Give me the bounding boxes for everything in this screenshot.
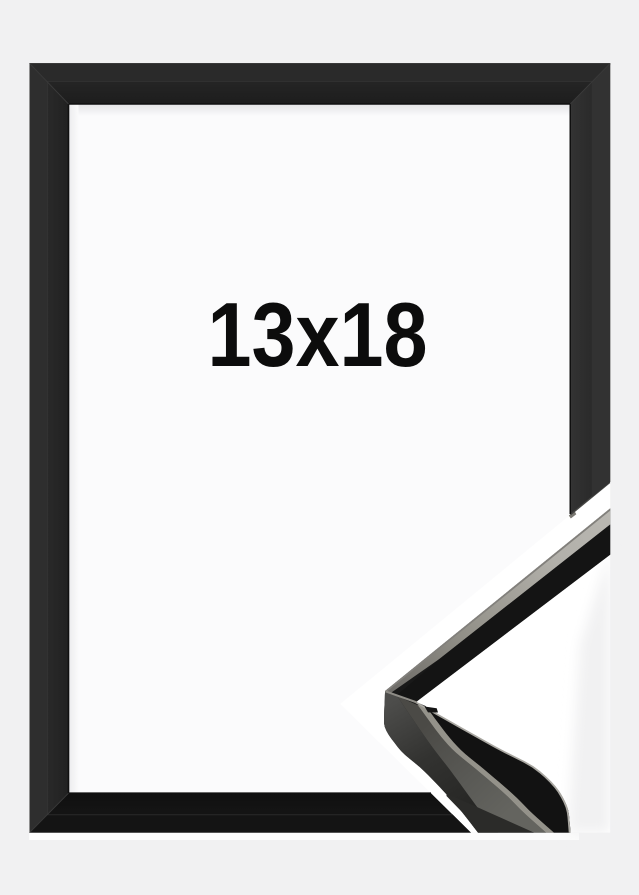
- svg-text:13x18: 13x18: [208, 284, 428, 386]
